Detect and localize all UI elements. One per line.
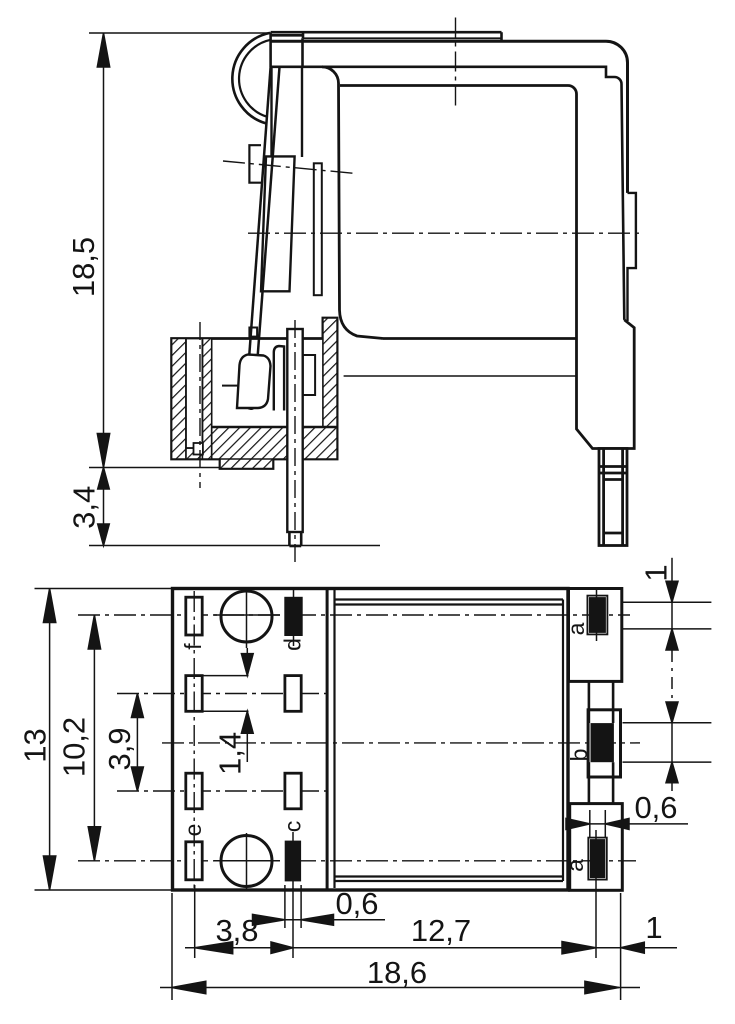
svg-text:c: c <box>280 821 306 833</box>
svg-text:0,6: 0,6 <box>634 790 677 825</box>
svg-text:18,6: 18,6 <box>367 955 427 990</box>
svg-text:10,2: 10,2 <box>57 717 92 777</box>
svg-text:3,9: 3,9 <box>102 727 137 770</box>
svg-text:3,4: 3,4 <box>66 486 101 529</box>
svg-text:12,7: 12,7 <box>411 913 471 948</box>
svg-text:3,8: 3,8 <box>215 913 258 948</box>
svg-text:b: b <box>566 749 592 762</box>
svg-text:a: a <box>563 622 589 635</box>
svg-text:1: 1 <box>645 910 662 945</box>
svg-text:f: f <box>180 643 206 650</box>
svg-text:13: 13 <box>18 728 53 762</box>
svg-text:d: d <box>280 638 306 651</box>
svg-text:1: 1 <box>639 564 674 581</box>
svg-text:e: e <box>180 824 206 837</box>
svg-text:a: a <box>562 859 588 872</box>
svg-text:1,4: 1,4 <box>213 732 248 775</box>
svg-text:18,5: 18,5 <box>66 237 101 297</box>
svg-text:0,6: 0,6 <box>335 886 378 921</box>
